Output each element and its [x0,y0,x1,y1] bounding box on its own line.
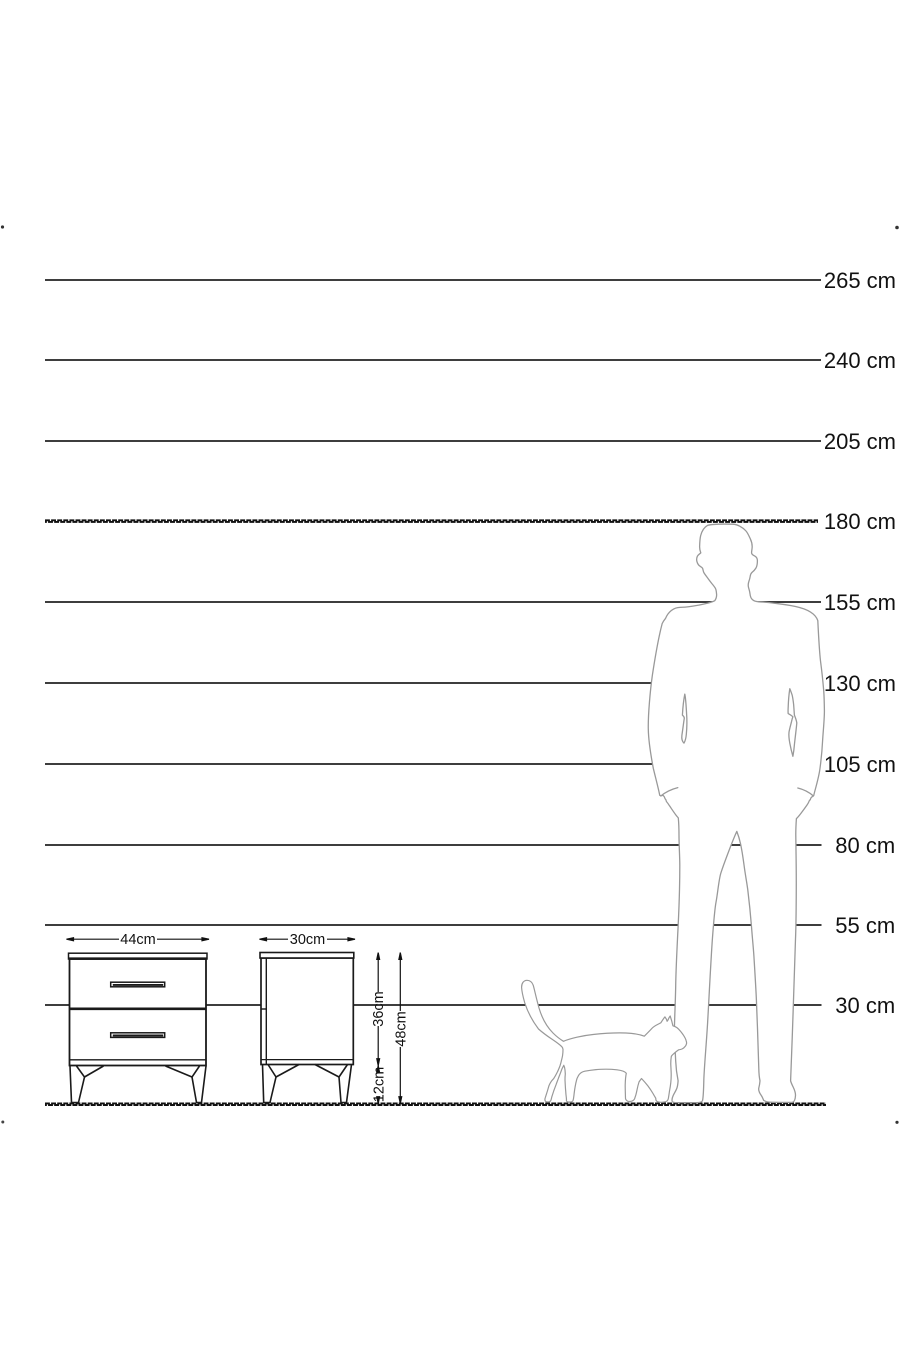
svg-text:55 cm: 55 cm [835,913,895,938]
svg-text:265 cm: 265 cm [824,268,896,293]
svg-text:155 cm: 155 cm [824,590,896,615]
svg-text:30 cm: 30 cm [835,993,895,1018]
svg-text:240 cm: 240 cm [824,348,896,373]
svg-text:12cm: 12cm [372,1067,388,1102]
svg-text:44cm: 44cm [120,932,155,948]
svg-text:105 cm: 105 cm [824,752,896,777]
svg-text:30cm: 30cm [290,932,325,948]
svg-text:36cm: 36cm [371,991,387,1026]
svg-text:205 cm: 205 cm [824,429,896,454]
svg-text:130 cm: 130 cm [824,671,896,696]
svg-text:80 cm: 80 cm [835,833,895,858]
svg-text:48cm: 48cm [393,1011,409,1046]
svg-text:180 cm: 180 cm [824,509,896,534]
